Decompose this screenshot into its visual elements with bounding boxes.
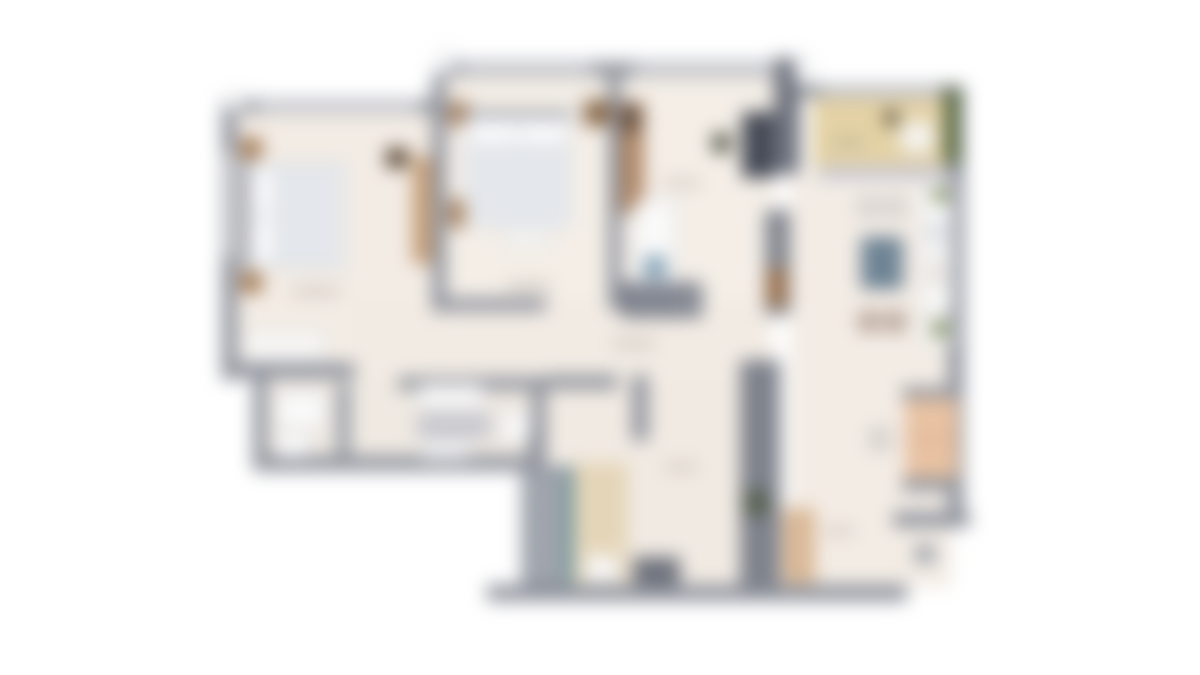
bed2-nightstand [584, 100, 610, 126]
window-tab [226, 92, 243, 111]
window-strip [258, 103, 418, 111]
window-strip [635, 65, 775, 73]
dining-chair [884, 311, 906, 332]
bath2-tub [417, 384, 485, 408]
dining-chair [858, 311, 880, 332]
kitchen-plant [932, 187, 949, 203]
balcony-lounge-chair [900, 121, 934, 153]
wall-bed1-bottom [222, 363, 355, 378]
room-label-smudge [663, 179, 701, 187]
bed2-bench [503, 230, 551, 248]
stair-tread [656, 284, 659, 316]
wall-bottom-right-living [893, 512, 970, 527]
side-table [869, 427, 891, 451]
bed1-pillow [253, 170, 270, 213]
room3-desk [742, 112, 774, 178]
bed2-blanket [464, 143, 571, 228]
wall-bath-divider [337, 383, 350, 461]
window-strip [462, 65, 592, 73]
balcony-hedge [944, 88, 960, 164]
wall-hall-top [545, 375, 618, 389]
stair-tread [674, 284, 677, 316]
bed1-dark-item [386, 148, 408, 168]
wall-bottom-main [487, 585, 907, 601]
stair-tread [575, 478, 626, 480]
bed1-wardrobe [412, 156, 432, 264]
room-label-smudge [292, 287, 340, 296]
bed1-nightstand [240, 272, 262, 293]
pillar-outside [915, 545, 935, 563]
bed1-headboard [241, 160, 249, 270]
stair-divider-teal [565, 466, 573, 584]
room-label-smudge [664, 463, 698, 471]
bed1-pillow [253, 219, 270, 262]
floorplan [0, 0, 1200, 675]
balcony-sliding-door [818, 166, 948, 179]
dining-table [861, 237, 903, 289]
bed1-blanket [272, 164, 346, 267]
bed2-pillow [521, 122, 566, 141]
bath2-sink [421, 442, 469, 460]
bath1-shower [276, 391, 326, 429]
tv-cabinet [782, 508, 815, 584]
window-tab [795, 57, 812, 83]
room-label-smudge [833, 138, 864, 146]
kitchen-plant [931, 320, 949, 338]
bed1-dresser [243, 330, 326, 363]
wall-bath-left [253, 370, 267, 470]
wall-hall-stub [632, 375, 648, 441]
room3-door-leaf [766, 268, 787, 306]
wall-shaft-bottom [740, 360, 780, 588]
dining-chair [884, 197, 906, 217]
kitchen-stove [927, 258, 947, 288]
bath1-toilet [278, 433, 309, 458]
dining-chair [858, 197, 880, 217]
stair-tread [523, 506, 563, 509]
room-label-smudge [506, 282, 551, 291]
wall-bed1-bed2 [432, 76, 446, 312]
stair-tread [523, 566, 563, 569]
stair-tread [523, 486, 563, 489]
stair-tread [575, 514, 626, 516]
room-label-smudge [612, 339, 655, 348]
room-label-smudge [824, 527, 855, 535]
window-strip [225, 152, 233, 257]
window-tab [437, 50, 453, 73]
room3-chair [712, 133, 731, 153]
sofa-cushion-line [905, 438, 958, 441]
wall-bath-bottom [253, 456, 546, 471]
stair-tread [575, 532, 626, 534]
blurred-floorplan-screenshot [0, 0, 1200, 675]
kitchen-sink [927, 220, 947, 246]
balcony-plant [884, 110, 899, 126]
entry-mat [633, 557, 680, 585]
wall-bed2-bottom [446, 298, 546, 311]
room3-wardrobe-dark [621, 104, 641, 132]
stair-tread [638, 284, 641, 316]
bed2-pillow [470, 122, 516, 141]
bath2-counter [417, 412, 491, 439]
floor-hall-mid [352, 300, 772, 382]
stair-landing [586, 556, 618, 582]
sofa-armrest [902, 478, 959, 491]
bed1-nightstand [240, 138, 262, 159]
stair-tread [690, 284, 693, 316]
stair-upper-blue [644, 256, 666, 278]
bath2-toilet [501, 414, 531, 441]
stair-tread [523, 546, 563, 549]
shaft-door-green [744, 490, 768, 516]
window-strip [822, 88, 940, 95]
stair-tread [523, 526, 563, 529]
stair-tread [575, 496, 626, 498]
